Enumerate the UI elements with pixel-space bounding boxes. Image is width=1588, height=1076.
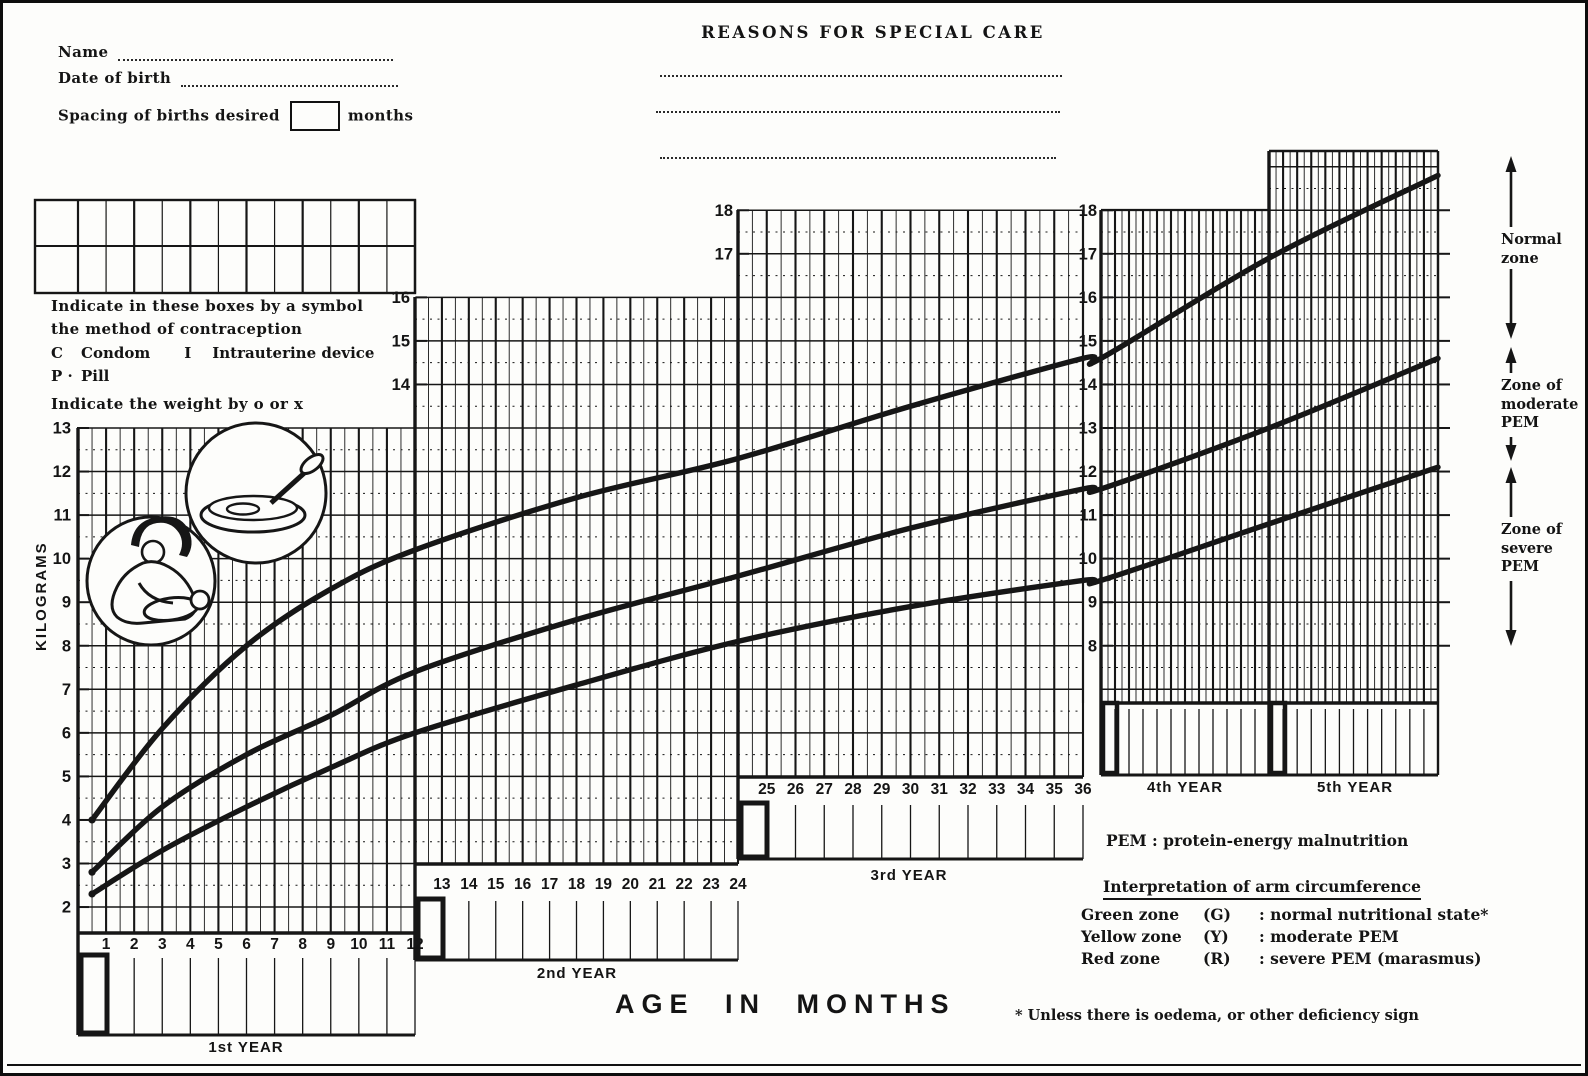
contraception-codes-row-2: P · Pill (51, 367, 109, 385)
green-zone-label: Green zone (1081, 905, 1203, 924)
code-c: C (51, 344, 81, 362)
svg-text:18: 18 (1079, 202, 1097, 220)
svg-text:13: 13 (53, 420, 71, 438)
svg-text:30: 30 (902, 781, 919, 798)
svg-text:5: 5 (62, 768, 71, 786)
svg-text:2: 2 (62, 899, 71, 917)
svg-text:26: 26 (787, 781, 805, 798)
svg-text:6: 6 (62, 724, 71, 742)
boxes-instruction: Indicate in these boxes by a symbol the … (51, 295, 363, 341)
svg-text:16: 16 (1079, 289, 1097, 307)
svg-text:17: 17 (1079, 245, 1097, 263)
zone-label-normal: Normal zone (1501, 231, 1587, 268)
svg-text:14: 14 (1079, 376, 1098, 394)
svg-text:16: 16 (514, 876, 532, 893)
svg-text:1st YEAR: 1st YEAR (208, 1039, 283, 1056)
svg-text:11: 11 (54, 507, 71, 525)
dob-dotted-line (181, 69, 398, 87)
growth-chart-page: 1234567891011121st YEAR13121110987654321… (0, 0, 1588, 1076)
svg-text:25: 25 (758, 781, 776, 798)
pem-def-text: : protein-energy malnutrition (1152, 831, 1408, 850)
green-zone-meaning: : normal nutritional state* (1259, 905, 1488, 924)
grid-group (78, 151, 1450, 1035)
red-zone-code: (R) (1203, 949, 1259, 968)
svg-text:24: 24 (729, 876, 747, 893)
svg-text:34: 34 (1017, 781, 1035, 798)
svg-text:3: 3 (158, 936, 167, 953)
svg-text:35: 35 (1046, 781, 1064, 798)
reasons-line-1 (660, 73, 1062, 77)
svg-text:12: 12 (406, 936, 423, 953)
svg-text:12: 12 (1079, 463, 1097, 481)
svg-text:22: 22 (676, 876, 693, 893)
svg-text:10: 10 (350, 936, 367, 953)
svg-text:13: 13 (1079, 420, 1097, 438)
svg-text:15: 15 (392, 332, 410, 350)
yellow-zone-label: Yellow zone (1081, 927, 1203, 946)
svg-text:6: 6 (242, 936, 251, 953)
svg-text:15: 15 (1079, 332, 1097, 350)
svg-text:5: 5 (214, 936, 223, 953)
svg-text:3: 3 (62, 855, 71, 873)
code-p-label: Pill (81, 367, 109, 385)
spacing-months-box (290, 101, 340, 131)
svg-text:10: 10 (1079, 550, 1097, 568)
svg-text:11: 11 (379, 936, 396, 953)
svg-text:21: 21 (649, 876, 667, 893)
reasons-line-2 (656, 109, 1060, 113)
name-dotted-line (118, 43, 393, 61)
svg-text:33: 33 (988, 781, 1006, 798)
yellow-zone-meaning: : moderate PEM (1259, 927, 1399, 946)
pem-abbr: PEM (1106, 831, 1147, 850)
svg-text:4: 4 (62, 811, 72, 829)
red-zone-label: Red zone (1081, 949, 1203, 968)
svg-text:3rd YEAR: 3rd YEAR (871, 867, 948, 884)
svg-text:19: 19 (595, 876, 613, 893)
svg-text:23: 23 (702, 876, 720, 893)
interpretation-title: Interpretation of arm circumference (1103, 877, 1421, 900)
zone-label-severe-pem: Zone of severe PEM (1501, 521, 1587, 577)
zone-label-moderate-pem: Zone of moderate PEM (1501, 377, 1588, 433)
svg-text:8: 8 (298, 936, 307, 953)
spacing-field: Spacing of births desiredmonths (58, 101, 413, 131)
legend-row-yellow: Yellow zone (Y) : moderate PEM (1081, 927, 1488, 946)
x-axis-title: AGE IN MONTHS (615, 989, 956, 1020)
svg-text:32: 32 (959, 781, 976, 798)
svg-text:10: 10 (53, 550, 71, 568)
code-c-label: Condom (81, 344, 150, 362)
weight-instruction: Indicate the weight by o or x (51, 395, 303, 413)
svg-text:28: 28 (844, 781, 862, 798)
code-i: I (184, 344, 212, 362)
red-zone-meaning: : severe PEM (marasmus) (1259, 949, 1481, 968)
code-i-label: Intrauterine device (212, 344, 374, 362)
svg-text:29: 29 (873, 781, 891, 798)
svg-text:8: 8 (62, 637, 71, 655)
svg-text:14: 14 (460, 876, 478, 893)
svg-text:7: 7 (62, 681, 71, 699)
svg-text:4: 4 (186, 936, 195, 953)
svg-text:5th YEAR: 5th YEAR (1317, 779, 1393, 796)
spacing-suffix-label: months (348, 107, 413, 125)
svg-text:18: 18 (568, 876, 586, 893)
dob-field: Date of birth (58, 69, 398, 87)
reasons-title: REASONS FOR SPECIAL CARE (663, 23, 1083, 42)
reasons-line-3 (660, 155, 1056, 159)
svg-text:9: 9 (326, 936, 335, 953)
legend-row-green: Green zone (G) : normal nutritional stat… (1081, 905, 1488, 924)
interpretation-list: Green zone (G) : normal nutritional stat… (1081, 905, 1488, 971)
svg-text:2nd YEAR: 2nd YEAR (537, 965, 617, 982)
svg-text:1: 1 (102, 936, 111, 953)
svg-text:36: 36 (1074, 781, 1092, 798)
footnote: * Unless there is oedema, or other defic… (1015, 1007, 1419, 1024)
svg-text:14: 14 (392, 376, 411, 394)
code-p: P · (51, 367, 81, 385)
svg-text:18: 18 (715, 202, 733, 220)
dob-field-label: Date of birth (58, 69, 171, 87)
svg-text:9: 9 (1088, 594, 1097, 612)
svg-text:2: 2 (130, 936, 139, 953)
svg-text:17: 17 (541, 876, 558, 893)
spacing-field-label: Spacing of births desired (58, 107, 280, 125)
name-field: Name (58, 43, 393, 61)
contraception-codes-row-1: C Condom I Intrauterine device (51, 344, 374, 362)
svg-text:13: 13 (433, 876, 451, 893)
name-field-label: Name (58, 43, 108, 61)
svg-text:20: 20 (622, 876, 639, 893)
y-axis-title: KILOGRAMS (33, 541, 50, 651)
legend-row-red: Red zone (R) : severe PEM (marasmus) (1081, 949, 1488, 968)
svg-text:8: 8 (1088, 637, 1097, 655)
interpretation-title-wrap: Interpretation of arm circumference (1103, 877, 1421, 900)
svg-text:27: 27 (816, 781, 833, 798)
svg-text:15: 15 (487, 876, 505, 893)
svg-text:7: 7 (270, 936, 279, 953)
svg-text:4th YEAR: 4th YEAR (1147, 779, 1223, 796)
svg-text:31: 31 (931, 781, 949, 798)
svg-text:12: 12 (53, 463, 71, 481)
svg-text:16: 16 (392, 289, 410, 307)
svg-text:9: 9 (62, 594, 71, 612)
svg-text:17: 17 (715, 245, 733, 263)
yellow-zone-code: (Y) (1203, 927, 1259, 946)
svg-text:11: 11 (1080, 507, 1097, 525)
bottom-rule (7, 1064, 1581, 1066)
green-zone-code: (G) (1203, 905, 1259, 924)
pem-definition: PEM : protein-energy malnutrition (1106, 831, 1408, 850)
